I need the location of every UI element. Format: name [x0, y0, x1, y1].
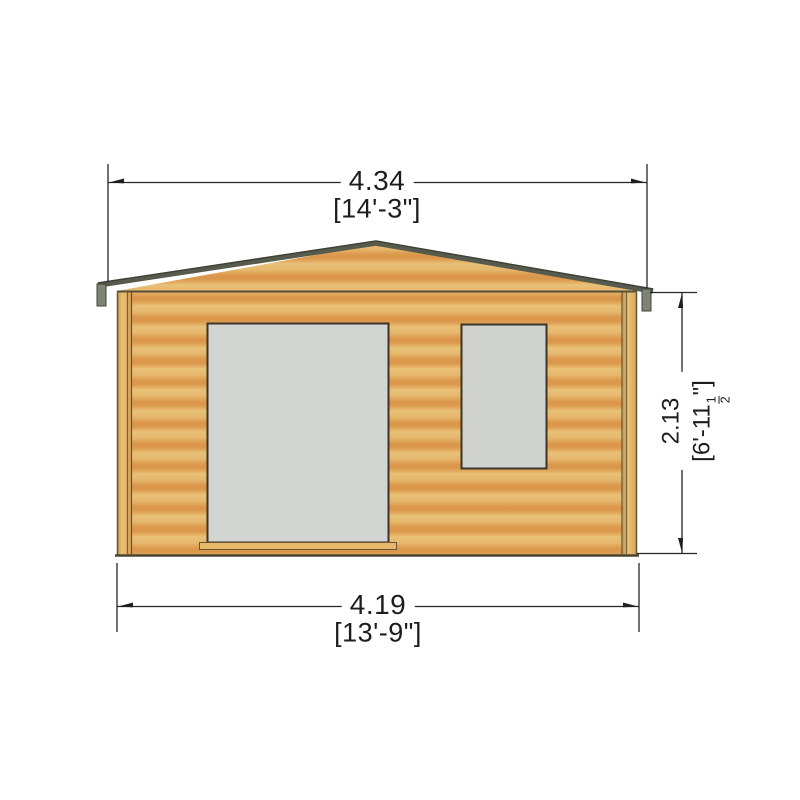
dim-height-label: 2.13 [6'-1112"] [654, 372, 735, 470]
cabin-door [208, 324, 389, 543]
half-inch-fraction: 12 [705, 395, 732, 404]
elevation-drawing-canvas: 4.34 [14'-3"] 4.19 [13'-9"] 2.13 [6'-111… [0, 0, 800, 800]
dim-height-metric: 2.13 [656, 380, 687, 462]
dim-wall-width-imperial: [13'-9"] [326, 620, 430, 647]
roof-edge-top-line [98, 241, 653, 289]
roof-edge-band [98, 243, 653, 291]
dim-wall-width-metric: 4.19 [342, 591, 415, 619]
door-threshold [200, 543, 397, 550]
cabin-window [462, 325, 547, 469]
dim-overall-width-imperial: [14'-3"] [325, 196, 429, 223]
dim-overall-width-metric: 4.34 [341, 167, 414, 195]
fascia-cap-right [642, 289, 651, 311]
fascia-cap-left [97, 284, 106, 306]
dim-height-imperial: [6'-1112"] [687, 380, 733, 462]
